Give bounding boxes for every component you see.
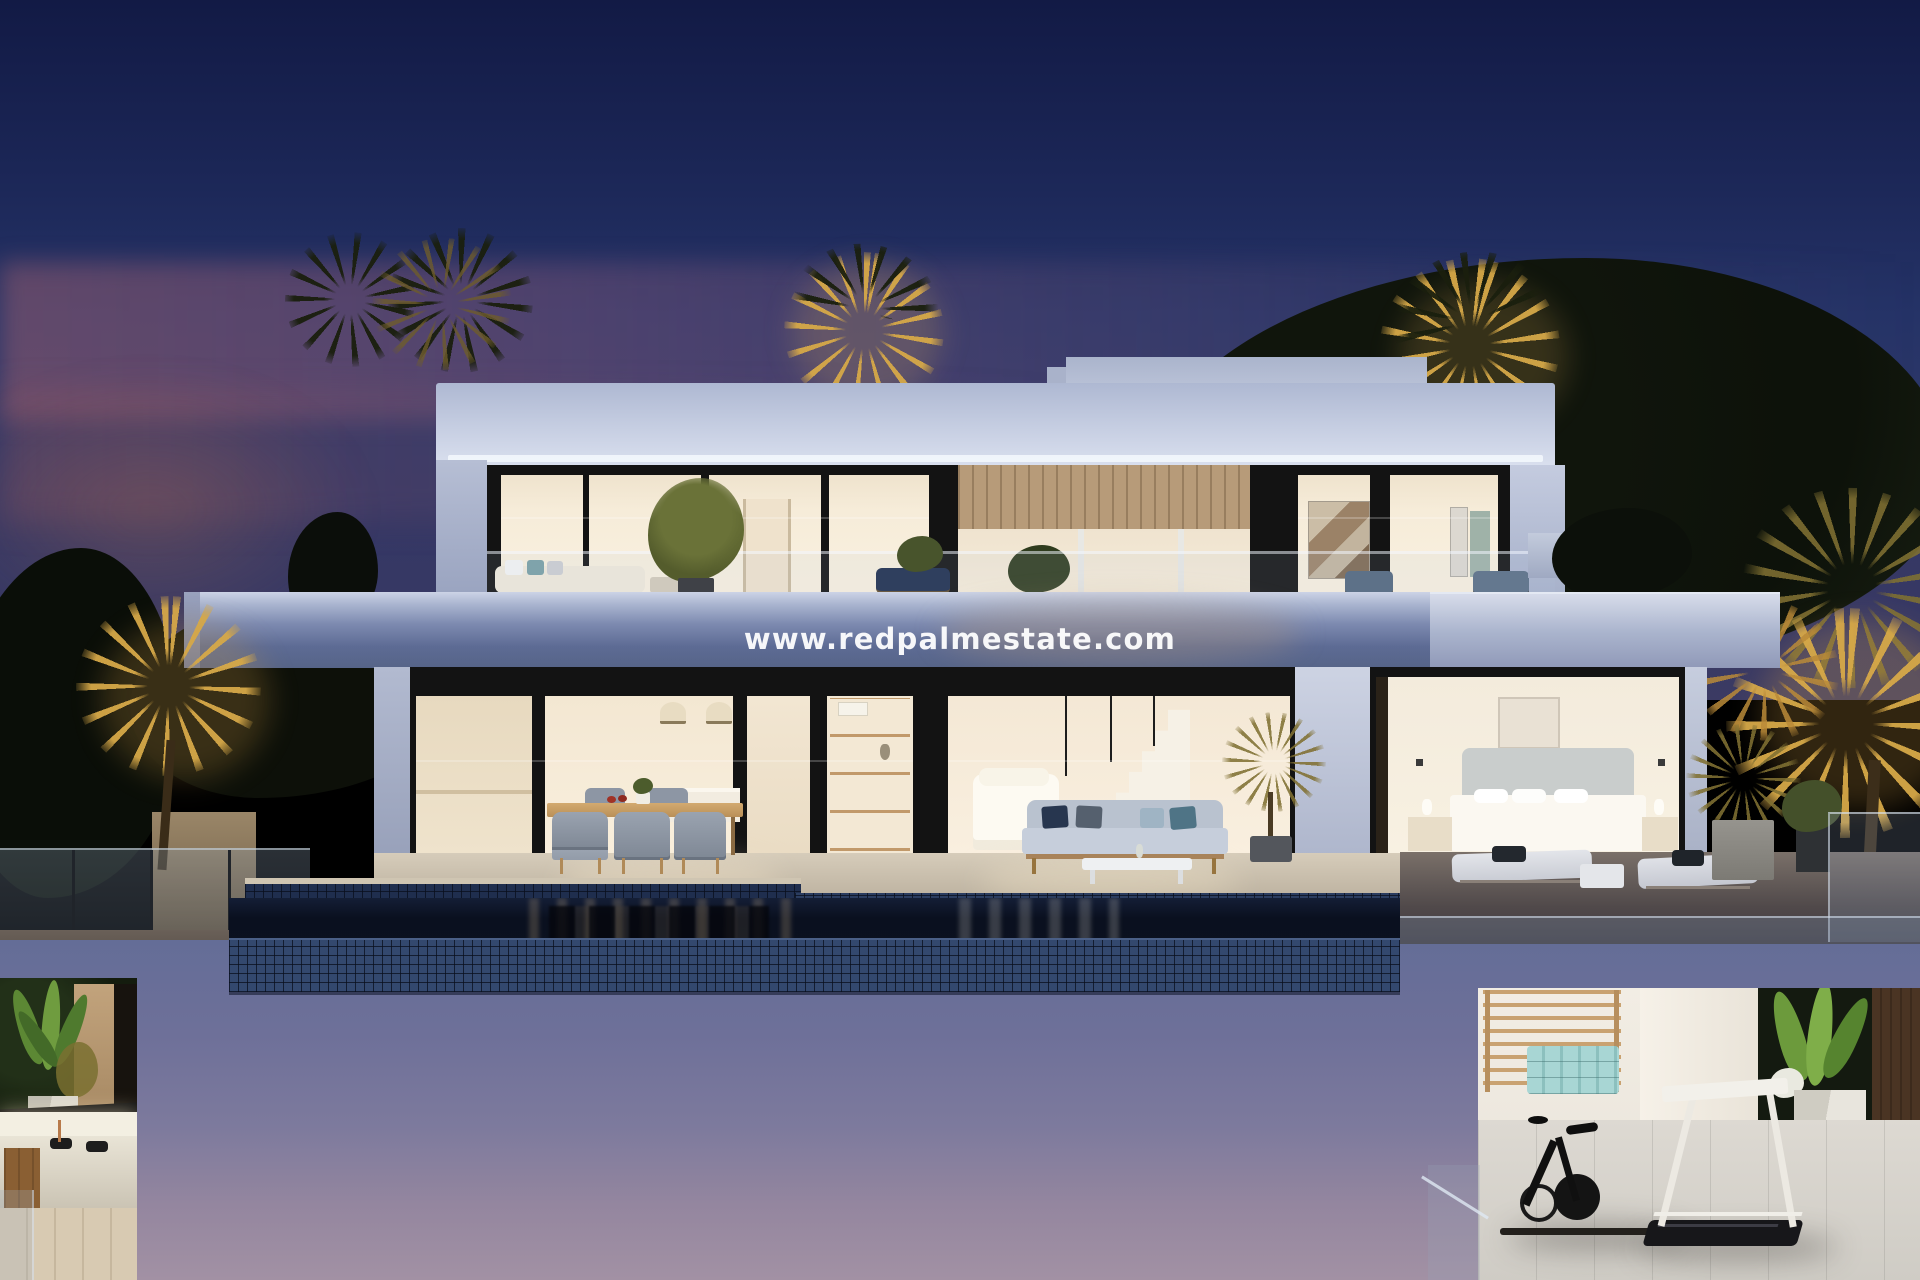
upper-fascia <box>436 383 1555 465</box>
sofa-pillow-navy <box>1041 805 1068 829</box>
hall-pane <box>747 696 810 853</box>
chair-leg <box>716 858 719 874</box>
bed-pillow <box>1554 789 1588 803</box>
ground-header-frame <box>410 667 1295 695</box>
patio-palm-trunk <box>1268 792 1273 840</box>
chair-leg <box>598 858 601 874</box>
shelving-vase <box>880 744 890 760</box>
treadmill-side-rail <box>1653 1212 1802 1216</box>
water-chair-reflections <box>549 906 769 940</box>
wall-switch <box>1658 759 1665 766</box>
terrace-tree-pot <box>678 578 714 593</box>
lounger-1-towel <box>1492 846 1526 862</box>
stair-baluster <box>1153 696 1155 746</box>
pendant-lamp <box>660 702 686 724</box>
bedroom-window <box>1370 667 1685 857</box>
ground-left-pillar <box>374 667 410 857</box>
treadmill-belt-highlight <box>1658 1224 1779 1227</box>
porch-wood-panel <box>958 465 1250 529</box>
wall-bars-rail <box>1485 990 1490 1092</box>
bike-rail <box>1500 1228 1660 1235</box>
bed <box>1450 795 1646 851</box>
stair-baluster <box>1110 696 1112 762</box>
dining-chair <box>674 812 726 860</box>
terrace-sofa-pillow-white <box>505 560 523 575</box>
upper-left-wall <box>436 460 487 594</box>
right-terrace-front-glass <box>1400 916 1920 944</box>
concrete-planter <box>1712 820 1774 880</box>
patio-palm <box>1222 712 1326 812</box>
bike-seat <box>1528 1116 1548 1124</box>
coffee-table-leg <box>1090 870 1095 884</box>
watermark-text: www.redpalmestate.com <box>744 622 1176 656</box>
lounger-side-table <box>1580 864 1624 888</box>
terrace-sofa-pillow-teal <box>527 560 544 575</box>
kitchen-counter <box>416 790 532 794</box>
bed-pillow <box>1474 789 1508 803</box>
sofa-pillow-teal <box>1169 806 1197 830</box>
water-reflection-white <box>959 898 1119 943</box>
nightstand <box>1408 817 1452 851</box>
towel-rail <box>58 1120 61 1142</box>
pool-near-face-tiles <box>229 938 1400 992</box>
gym-opening <box>1478 988 1920 1280</box>
right-wing-roof-band <box>1430 592 1780 668</box>
chair-leg <box>682 858 685 874</box>
patio-palm-pot <box>1250 836 1292 862</box>
chair-leg <box>560 858 563 874</box>
table-leg <box>731 817 735 855</box>
red-bowl <box>618 795 627 802</box>
upper-balustrade-glass <box>487 554 1555 593</box>
red-bowl <box>607 796 616 803</box>
sofa-leg <box>1032 858 1036 874</box>
dining-chair <box>614 812 670 860</box>
bedroom-art <box>1498 697 1560 749</box>
bedside-lamp <box>1422 799 1432 815</box>
sofa-pillow-gray <box>1075 805 1102 828</box>
chair-leg <box>622 858 625 874</box>
sofa-leg <box>1212 858 1216 874</box>
shelving-boxes <box>838 702 868 716</box>
pendant-lamp <box>706 702 732 724</box>
spa-jet-cover <box>86 1141 108 1152</box>
sofa-pillow-light <box>1140 808 1164 828</box>
bedroom-jamb <box>1376 677 1388 853</box>
spa-jet-cover <box>50 1138 72 1149</box>
kitchen-cabinets-pane <box>416 696 532 853</box>
villa-dusk-render: www.redpalmestate.com <box>0 0 1920 1280</box>
lounger-2-towel <box>1672 850 1704 866</box>
outdoor-sofa-seat <box>1022 828 1228 854</box>
lounger-1-legs <box>1460 880 1580 883</box>
spa-top-glow <box>0 1112 137 1138</box>
wall-switch <box>1416 759 1423 766</box>
chair-leg <box>660 858 663 874</box>
coffee-table-leg <box>1178 870 1183 884</box>
interior-sofa-cushions <box>979 768 1049 786</box>
bed-pillow <box>1512 789 1546 803</box>
mint-mat-rolls <box>1527 1046 1619 1094</box>
basement-stair-glass <box>1428 1165 1480 1280</box>
terrace-sofa-pillow-gray <box>547 561 563 575</box>
spa-opening <box>0 978 137 1280</box>
lounger-2-legs <box>1646 886 1750 889</box>
spa-front-glass <box>0 1190 34 1280</box>
upper-glass-reflection <box>1298 517 1498 519</box>
ground-glass-reflection <box>416 760 913 762</box>
shelving-unit <box>830 698 910 851</box>
stair-baluster <box>1065 696 1067 776</box>
upper-fascia-lip <box>448 455 1543 462</box>
table-vase <box>1136 844 1143 858</box>
ground-center-pillar <box>917 667 943 857</box>
bedside-lamp <box>1654 799 1664 815</box>
pool-water <box>229 898 1400 943</box>
coffee-table <box>1082 858 1192 870</box>
nightstand <box>1642 817 1678 851</box>
dining-chair <box>552 812 608 860</box>
